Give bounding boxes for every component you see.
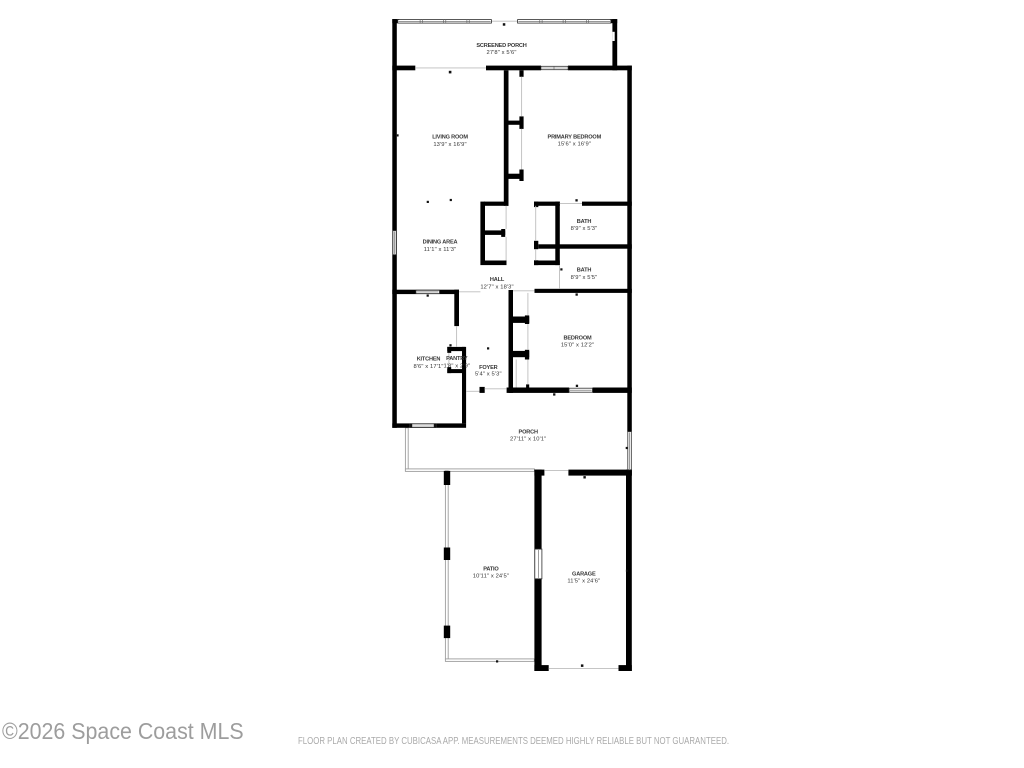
svg-text:27'11" x 10'1": 27'11" x 10'1" bbox=[510, 437, 546, 443]
svg-text:8'9" x 5'5": 8'9" x 5'5" bbox=[571, 275, 598, 281]
svg-text:27'8" x 5'6": 27'8" x 5'6" bbox=[486, 50, 516, 56]
svg-text:8'6" x 17'1": 8'6" x 17'1" bbox=[413, 364, 443, 370]
svg-text:SCREENED PORCH: SCREENED PORCH bbox=[476, 43, 526, 49]
svg-text:DINING AREA: DINING AREA bbox=[423, 240, 458, 246]
svg-text:PRIMARY BEDROOM: PRIMARY BEDROOM bbox=[548, 134, 602, 140]
svg-text:KITCHEN: KITCHEN bbox=[417, 357, 441, 363]
svg-text:BEDROOM: BEDROOM bbox=[564, 335, 592, 341]
svg-text:PANTRY: PANTRY bbox=[446, 356, 468, 362]
svg-text:13'9" x 16'9": 13'9" x 16'9" bbox=[433, 142, 466, 148]
svg-text:12'7" x 18'3": 12'7" x 18'3" bbox=[480, 284, 513, 290]
svg-text:BATH: BATH bbox=[577, 268, 592, 274]
svg-text:5'4" x 5'3": 5'4" x 5'3" bbox=[475, 372, 502, 378]
svg-text:LIVING ROOM: LIVING ROOM bbox=[432, 135, 468, 141]
svg-text:15'0" x 12'2": 15'0" x 12'2" bbox=[561, 343, 594, 349]
svg-text:11'5" x 24'6": 11'5" x 24'6" bbox=[567, 579, 600, 585]
svg-text:11'1" x 11'3": 11'1" x 11'3" bbox=[424, 247, 457, 253]
svg-text:FOYER: FOYER bbox=[479, 365, 498, 371]
svg-text:8'9" x 5'3": 8'9" x 5'3" bbox=[571, 226, 598, 232]
svg-text:10'11" x 24'5": 10'11" x 24'5" bbox=[473, 573, 509, 579]
svg-text:HALL: HALL bbox=[490, 277, 505, 283]
svg-text:GARAGE: GARAGE bbox=[572, 571, 596, 577]
svg-text:BATH: BATH bbox=[577, 219, 592, 225]
svg-text:PATIO: PATIO bbox=[483, 567, 499, 573]
svg-text:15'6" x 16'9": 15'6" x 16'9" bbox=[558, 142, 591, 148]
svg-text:1'8" x 2'9": 1'8" x 2'9" bbox=[443, 363, 470, 369]
svg-text:PORCH: PORCH bbox=[519, 429, 538, 435]
